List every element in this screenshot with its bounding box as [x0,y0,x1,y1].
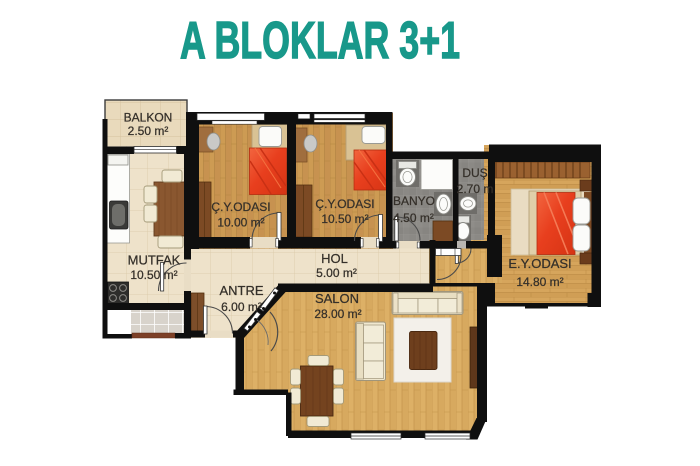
svg-text:10.00 m²: 10.00 m² [217,216,264,230]
svg-text:HOL: HOL [321,251,348,266]
svg-text:Ç.Y.ODASI: Ç.Y.ODASI [211,200,270,214]
svg-text:MUTFAK: MUTFAK [128,253,181,268]
svg-text:4.50 m²: 4.50 m² [393,211,434,225]
svg-text:28.00 m²: 28.00 m² [314,307,361,321]
svg-text:14.80 m²: 14.80 m² [516,275,563,289]
svg-text:BANYO: BANYO [393,194,435,208]
svg-text:E.Y.ODASI: E.Y.ODASI [508,256,571,271]
svg-text:BALKON: BALKON [124,111,173,125]
svg-text:SALON: SALON [315,291,359,306]
svg-text:2.50 m²: 2.50 m² [128,124,169,138]
svg-text:10.50 m²: 10.50 m² [321,212,368,226]
svg-text:A BLOKLAR 3+1: A BLOKLAR 3+1 [180,12,460,70]
svg-text:Ç.Y.ODASI: Ç.Y.ODASI [315,197,374,211]
svg-text:10.50 m²: 10.50 m² [130,268,177,282]
svg-text:DUŞ: DUŞ [462,166,487,180]
svg-text:6.00 m²: 6.00 m² [221,300,262,314]
svg-text:5.00 m²: 5.00 m² [316,266,357,280]
svg-text:2.70 m: 2.70 m [457,182,494,196]
svg-text:ANTRE: ANTRE [219,283,263,298]
